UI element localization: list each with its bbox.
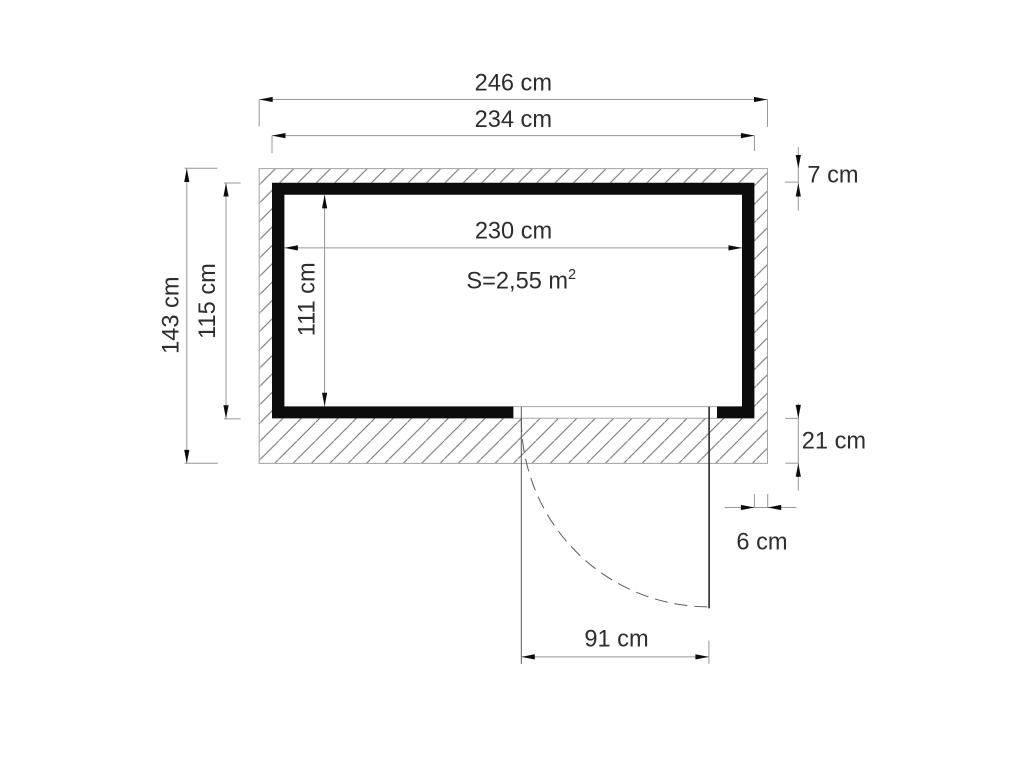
svg-text:230 cm: 230 cm — [475, 218, 552, 244]
svg-text:91 cm: 91 cm — [584, 626, 648, 652]
svg-text:111 cm: 111 cm — [295, 262, 321, 336]
svg-text:234 cm: 234 cm — [475, 107, 552, 133]
svg-text:21 cm: 21 cm — [802, 428, 866, 454]
svg-text:S=2,55 m2: S=2,55 m2 — [466, 267, 576, 295]
svg-text:246 cm: 246 cm — [475, 71, 552, 97]
svg-text:143 cm: 143 cm — [158, 277, 184, 354]
svg-text:7 cm: 7 cm — [807, 163, 858, 189]
svg-text:6 cm: 6 cm — [736, 530, 787, 556]
svg-text:115 cm: 115 cm — [195, 263, 221, 339]
